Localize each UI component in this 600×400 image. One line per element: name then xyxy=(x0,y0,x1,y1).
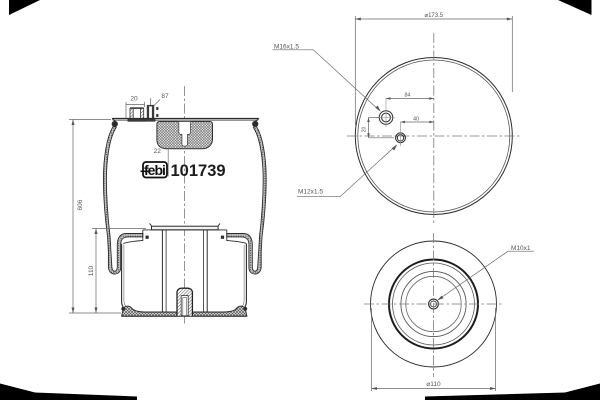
svg-text:110: 110 xyxy=(88,265,95,276)
svg-text:101739: 101739 xyxy=(171,162,226,180)
svg-text:606: 606 xyxy=(77,199,84,210)
svg-text:20: 20 xyxy=(362,127,368,133)
svg-text:⌀110: ⌀110 xyxy=(426,381,441,388)
svg-text:febi: febi xyxy=(144,162,165,178)
svg-text:40: 40 xyxy=(413,116,419,122)
svg-text:M12x1.5: M12x1.5 xyxy=(298,189,323,196)
svg-text:84: 84 xyxy=(404,93,410,99)
svg-text:22: 22 xyxy=(154,148,162,155)
svg-text:20: 20 xyxy=(130,96,138,103)
svg-text:87: 87 xyxy=(161,93,169,100)
svg-text:⌀173.5: ⌀173.5 xyxy=(424,13,443,19)
